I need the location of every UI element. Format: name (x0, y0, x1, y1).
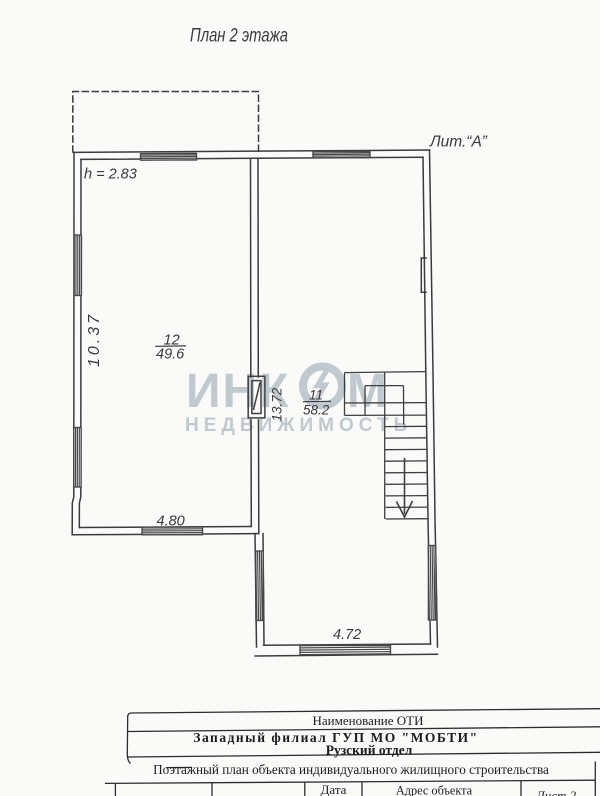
svg-text:58.2: 58.2 (303, 403, 330, 418)
svg-text:Лист 2: Лист 2 (535, 788, 577, 796)
svg-text:Рузский отдел: Рузский отдел (326, 743, 413, 758)
svg-text:11: 11 (309, 388, 323, 403)
svg-text:Дата: Дата (321, 782, 347, 796)
svg-text:10.37: 10.37 (86, 312, 103, 367)
svg-text:НЕДВИЖИМОСТЬ: НЕДВИЖИМОСТЬ (185, 415, 412, 436)
svg-text:4.80: 4.80 (157, 514, 185, 530)
svg-text:h = 2.83: h = 2.83 (84, 167, 137, 183)
svg-text:Поэтажный план объекта индивид: Поэтажный план объекта индивидуального ж… (153, 762, 549, 777)
svg-text:Лит.“А”: Лит.“А” (429, 134, 488, 151)
svg-text:Адрес объекта: Адрес объекта (396, 784, 473, 796)
svg-text:4.72: 4.72 (333, 627, 361, 643)
svg-text:Наименование ОТИ: Наименование ОТИ (313, 713, 424, 728)
svg-text:13.72: 13.72 (270, 387, 285, 421)
svg-text:План 2 этажа: План 2 этажа (190, 25, 288, 46)
svg-text:49.6: 49.6 (156, 347, 185, 363)
